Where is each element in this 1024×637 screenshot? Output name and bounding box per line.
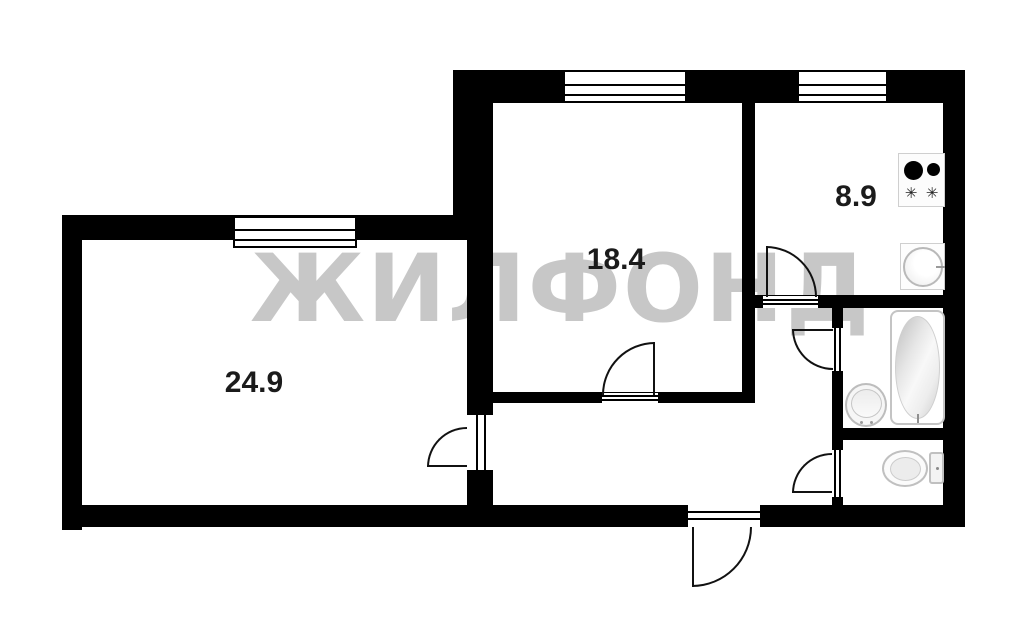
wall-bathroom-wc-divider <box>832 428 943 440</box>
stove-burner-large <box>904 161 923 180</box>
door-frame-entrance <box>688 505 760 527</box>
window-mullion-line <box>235 239 355 241</box>
toilet-tank-button <box>936 467 939 470</box>
window-mullion-line <box>235 229 355 231</box>
stove-burner-symbol-icon: ✳ <box>922 186 942 201</box>
door-frame-living-room <box>465 415 494 470</box>
wall-room2-kitchen-divider <box>742 103 755 403</box>
window-mullion-line <box>565 94 685 96</box>
door-jamb-line <box>602 395 658 397</box>
door-swing-living-room <box>427 427 467 467</box>
area-label-living-room: 24.9 <box>199 366 309 400</box>
door-jamb-line <box>484 415 486 470</box>
door-jamb-line <box>688 518 760 520</box>
door-swing-room2 <box>602 342 655 395</box>
door-swing-wc <box>792 453 832 493</box>
door-jamb-line <box>834 450 836 497</box>
door-jamb-line <box>476 415 478 470</box>
washbasin-bowl <box>851 389 882 418</box>
wall-bottom-exterior <box>62 505 965 527</box>
washbasin-icon <box>845 383 887 427</box>
door-frame-kitchen <box>763 296 818 308</box>
bathtub-drain <box>917 414 919 423</box>
door-jamb-line <box>763 299 818 301</box>
kitchen-sink-icon <box>900 243 945 290</box>
area-label-room2: 18.4 <box>561 243 671 277</box>
wall-top-right-section <box>453 70 965 103</box>
window-mullion-line <box>799 94 886 96</box>
floor-plan-canvas: ЖИЛФОНД <box>0 0 1024 637</box>
door-swing-bathroom <box>792 329 833 370</box>
door-jamb-line <box>834 328 836 371</box>
window-room2 <box>563 70 687 103</box>
door-swing-entrance <box>692 527 752 587</box>
toilet-tank <box>929 452 944 484</box>
wall-left-exterior <box>62 215 82 530</box>
door-jamb-line <box>688 511 760 513</box>
window-living-room <box>233 216 357 248</box>
washbasin-tap-dot <box>870 421 873 424</box>
kitchen-sink-tap <box>936 266 945 268</box>
area-label-kitchen: 8.9 <box>801 180 911 214</box>
bathtub-basin <box>895 316 940 419</box>
bathtub-icon <box>890 310 945 425</box>
door-jamb-line <box>839 450 841 497</box>
window-mullion-line <box>565 84 685 86</box>
door-jamb-line <box>602 399 658 401</box>
toilet-bowl-inner <box>890 457 921 481</box>
toilet-icon <box>882 450 928 487</box>
window-mullion-line <box>799 84 886 86</box>
door-jamb-line <box>839 328 841 371</box>
door-frame-wc <box>831 450 844 497</box>
stove-burner-small <box>927 163 940 176</box>
window-kitchen <box>797 70 888 103</box>
washbasin-tap-dot <box>860 421 863 424</box>
door-jamb-line <box>763 303 818 305</box>
